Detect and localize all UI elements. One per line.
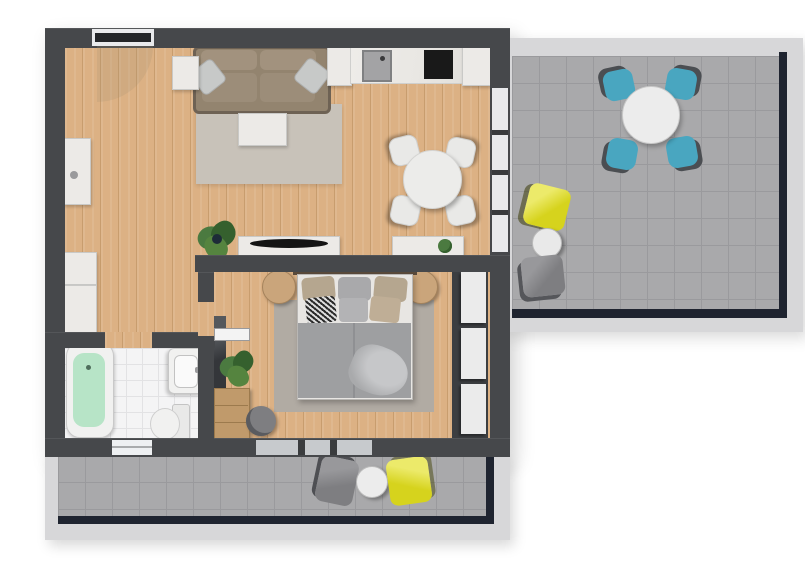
appliance-knob [70,171,78,179]
outdoor-chair-teal-4 [665,135,700,170]
wall-left [45,28,65,457]
bathtub [66,342,114,438]
wall-bathroom-top-left [45,332,105,348]
side-table [172,56,199,90]
lounge-chair-yellow-bottom [385,455,433,506]
bathroom-window [112,440,152,455]
sofa [193,46,331,114]
bedroom-plant [220,350,256,390]
wall-divider-living-bedroom [195,255,510,272]
wardrobe [452,268,488,440]
terrace-right-edge-right [779,52,787,312]
sliding-door-frame-tick-2 [330,440,337,455]
dresser [214,388,250,442]
wardrobe-panel-3 [461,384,486,434]
sink-faucet [380,56,385,61]
wardrobe-panel-2 [461,328,486,379]
bedroom-door-leaf [214,328,250,341]
console-plant [438,239,452,253]
bathroom-door-opening [105,332,152,348]
terrace-bottom-edge-right [486,455,494,524]
outdoor-side-table-bottom [356,466,388,498]
coffee-table [238,113,287,146]
sliding-door-frame-tick-1 [298,440,305,455]
dresser-divider-2 [215,422,248,423]
hall-cabinet-1 [62,252,97,285]
wall-bedroom-left-upper [198,272,214,302]
outdoor-dining-table [622,86,680,144]
terrace-bottom-edge-bottom [58,516,492,524]
kitchen-cooktop [424,50,453,79]
kitchen-cabinet-left [327,44,352,86]
bed-pillow-pattern [305,296,338,325]
kitchen-sink [362,50,392,82]
floor-plan [0,0,805,563]
wall-bedroom-left-lower [198,336,214,440]
bathtub-drain [86,365,91,370]
bed [297,274,413,400]
glazing-frame-tick-1 [492,130,508,135]
pouf [246,406,276,436]
bed-pillow-tan-small [369,296,401,324]
nightstand-left [262,270,296,304]
bed-pillow-gray-small [339,298,368,322]
wardrobe-panel-1 [461,272,486,323]
glazing-frame-tick-2 [492,170,508,175]
bedroom-door-opening [198,302,214,336]
hall-cabinet-2 [62,285,97,333]
tall-cabinet-appliance [63,138,91,205]
entrance-door-leaf [95,33,151,42]
outdoor-side-table-right [532,228,562,258]
lounge-chair-gray-right [520,254,566,298]
kitchen-cabinet-right [462,44,492,86]
toilet-bowl [150,408,180,440]
dining-table [403,150,462,209]
tv [250,239,328,248]
dresser-divider-1 [215,405,248,406]
outdoor-chair-teal-3 [605,137,640,172]
bedroom-sliding-door [256,440,372,455]
glazing-frame-tick-3 [492,210,508,215]
bathroom-window-mullion [112,446,152,448]
terrace-right-edge-bottom [512,309,787,318]
